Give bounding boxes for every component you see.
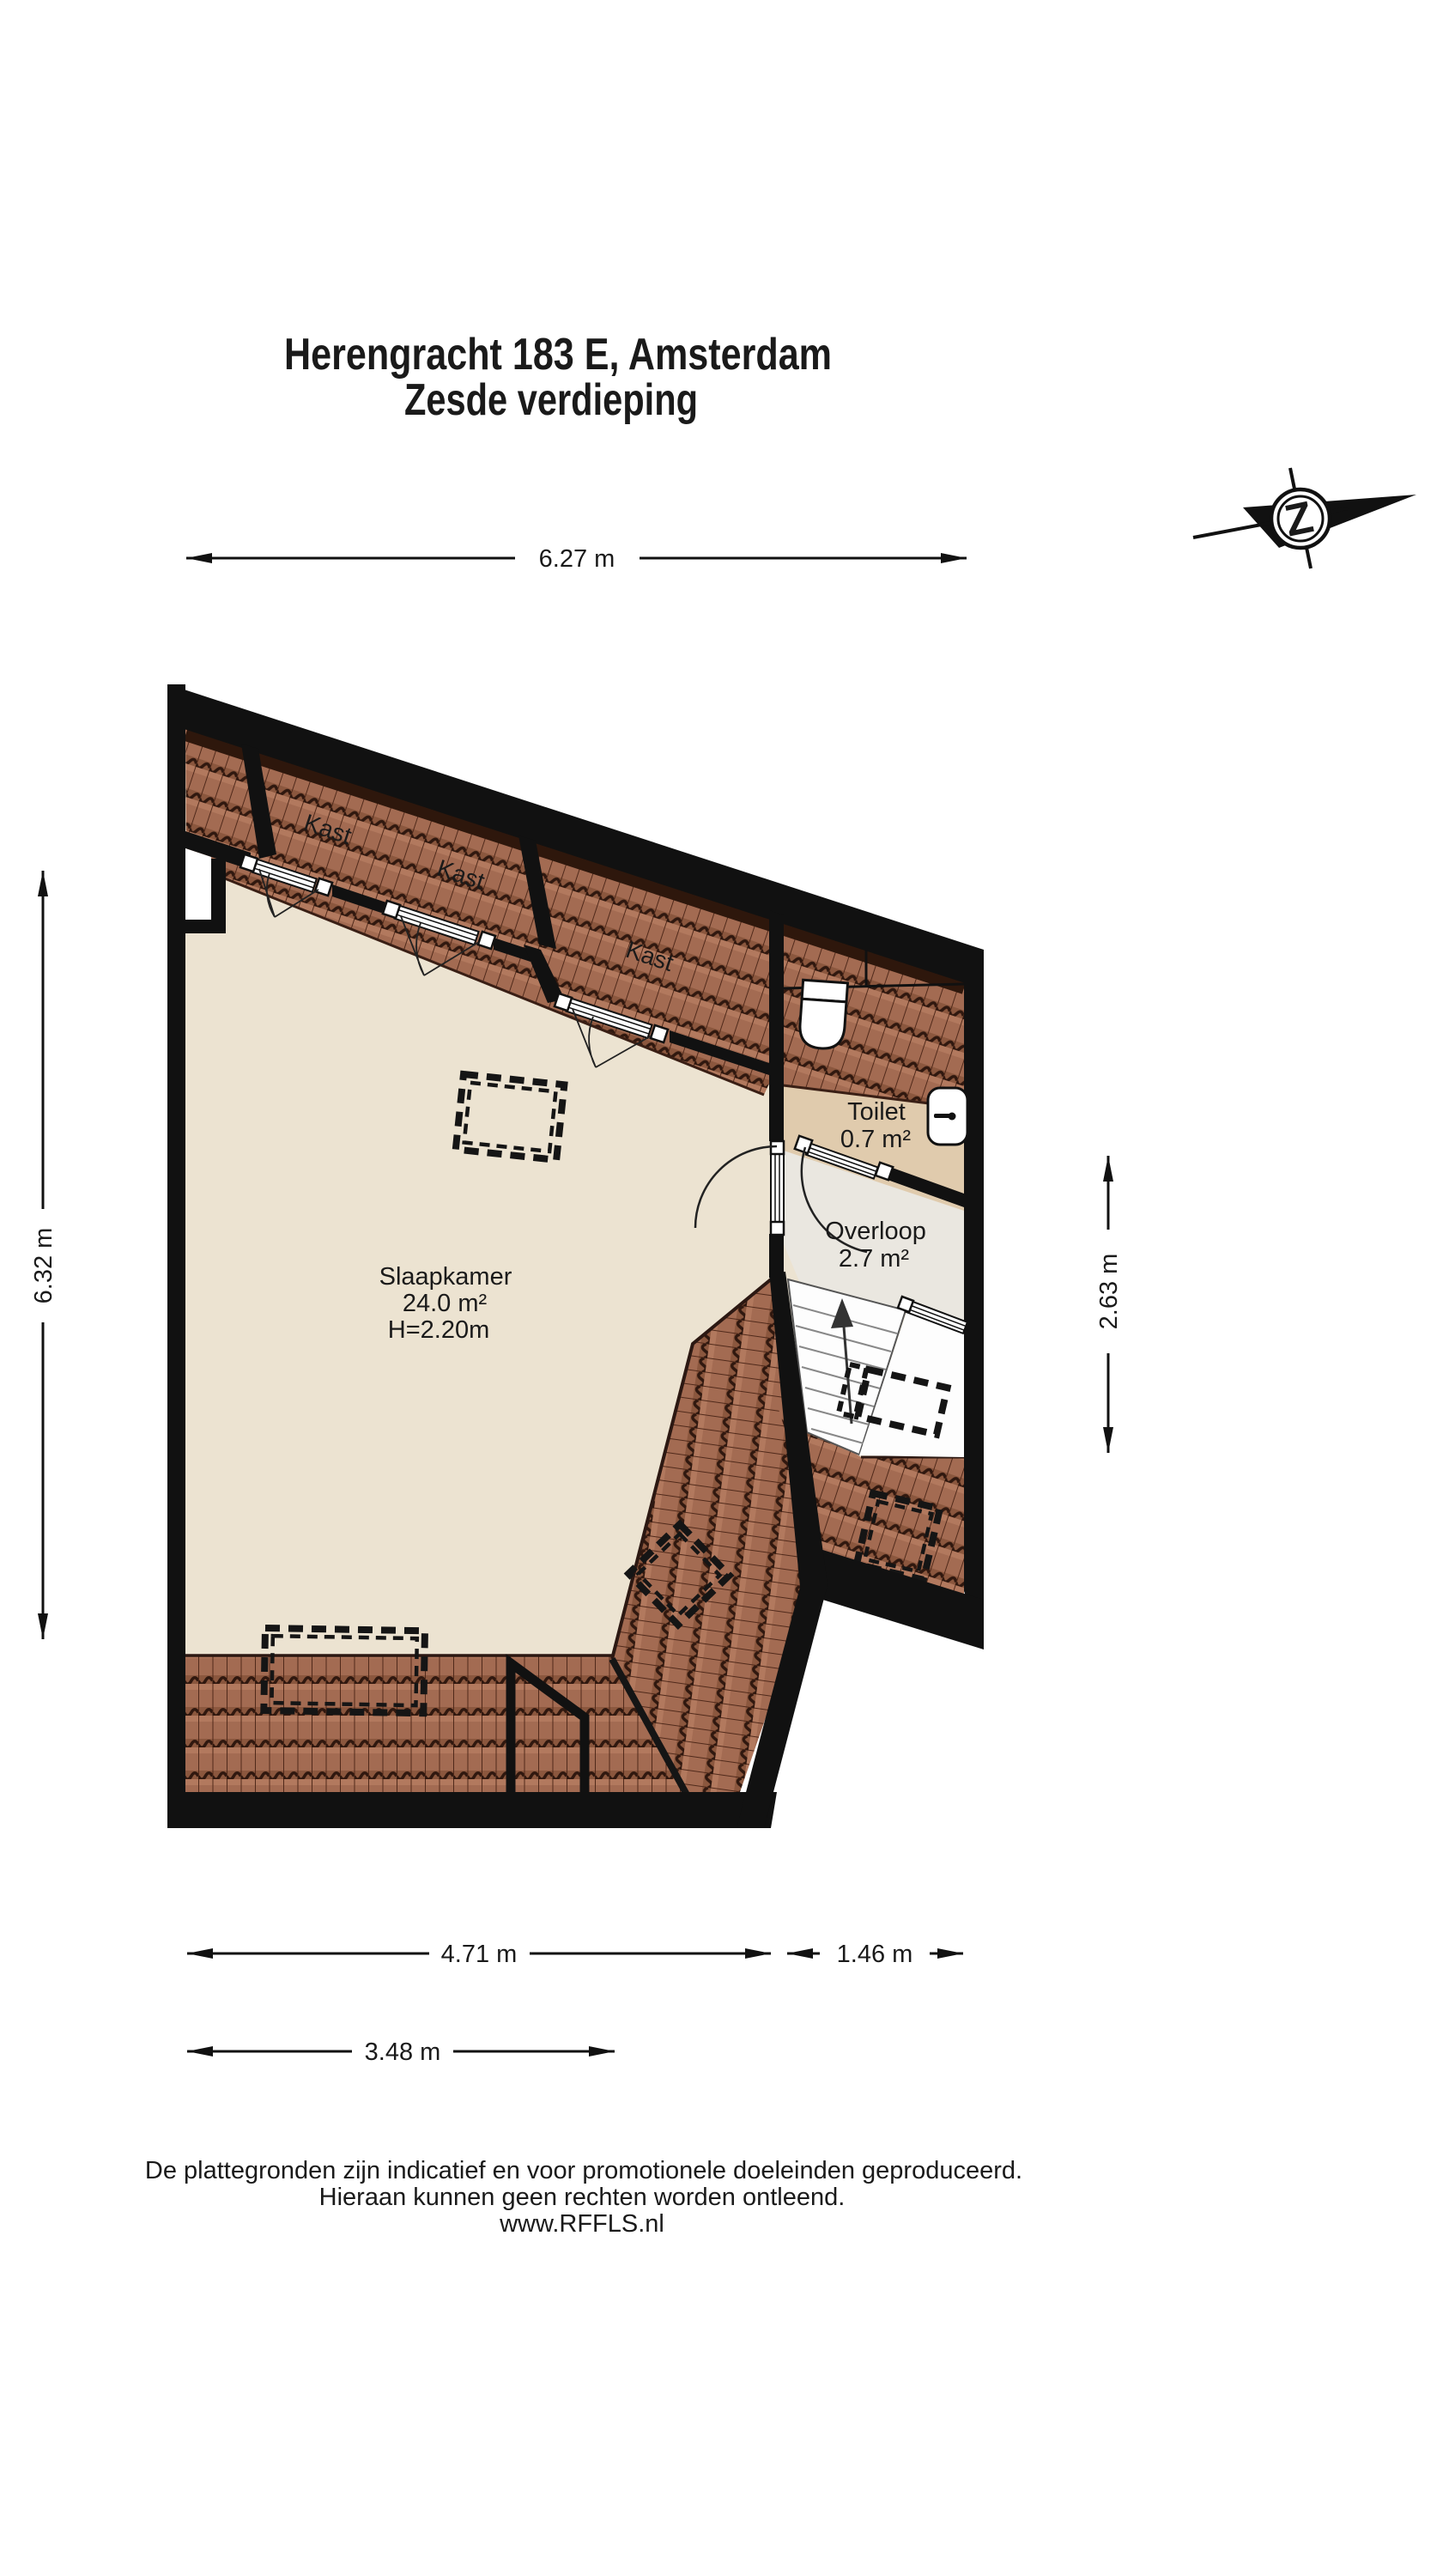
svg-text:Herengracht 183 E, Amsterdam: Herengracht 183 E, Amsterdam: [284, 330, 832, 380]
svg-text:Overloop: Overloop: [825, 1218, 926, 1245]
svg-text:2.7 m²: 2.7 m²: [839, 1245, 910, 1273]
svg-text:0.7 m²: 0.7 m²: [840, 1126, 912, 1153]
svg-text:1.46 m: 1.46 m: [837, 1941, 913, 1968]
svg-text:2.63 m: 2.63 m: [1095, 1254, 1123, 1330]
svg-text:De plattegronden zijn indicati: De plattegronden zijn indicatief en voor…: [145, 2157, 1022, 2184]
svg-text:6.32 m: 6.32 m: [30, 1228, 58, 1304]
svg-text:24.0 m²: 24.0 m²: [403, 1290, 488, 1317]
svg-text:Slaapkamer: Slaapkamer: [379, 1263, 512, 1291]
svg-text:H=2.20m: H=2.20m: [388, 1316, 489, 1344]
svg-text:4.71 m: 4.71 m: [441, 1941, 518, 1968]
svg-text:www.RFFLS.nl: www.RFFLS.nl: [499, 2210, 664, 2238]
svg-text:Toilet: Toilet: [847, 1098, 906, 1126]
svg-text:6.27 m: 6.27 m: [539, 545, 615, 573]
svg-text:3.48 m: 3.48 m: [365, 2038, 441, 2066]
svg-text:Zesde verdieping: Zesde verdieping: [404, 375, 698, 425]
svg-text:Hieraan kunnen geen rechten wo: Hieraan kunnen geen rechten worden ontle…: [319, 2184, 846, 2211]
